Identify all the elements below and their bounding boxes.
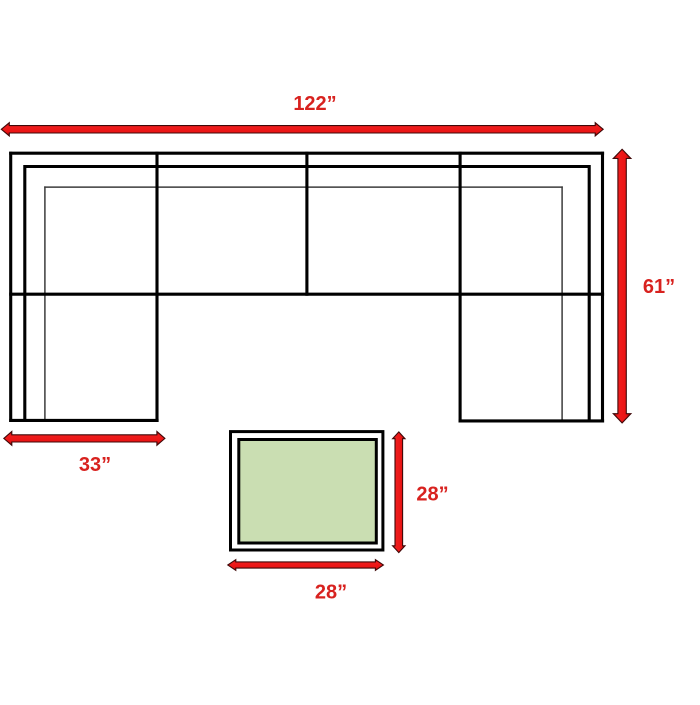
svg-text:61”: 61”: [643, 276, 675, 298]
svg-text:28”: 28”: [416, 484, 448, 506]
svg-text:122”: 122”: [293, 93, 336, 115]
svg-text:33”: 33”: [79, 454, 111, 476]
svg-text:28”: 28”: [315, 582, 347, 604]
